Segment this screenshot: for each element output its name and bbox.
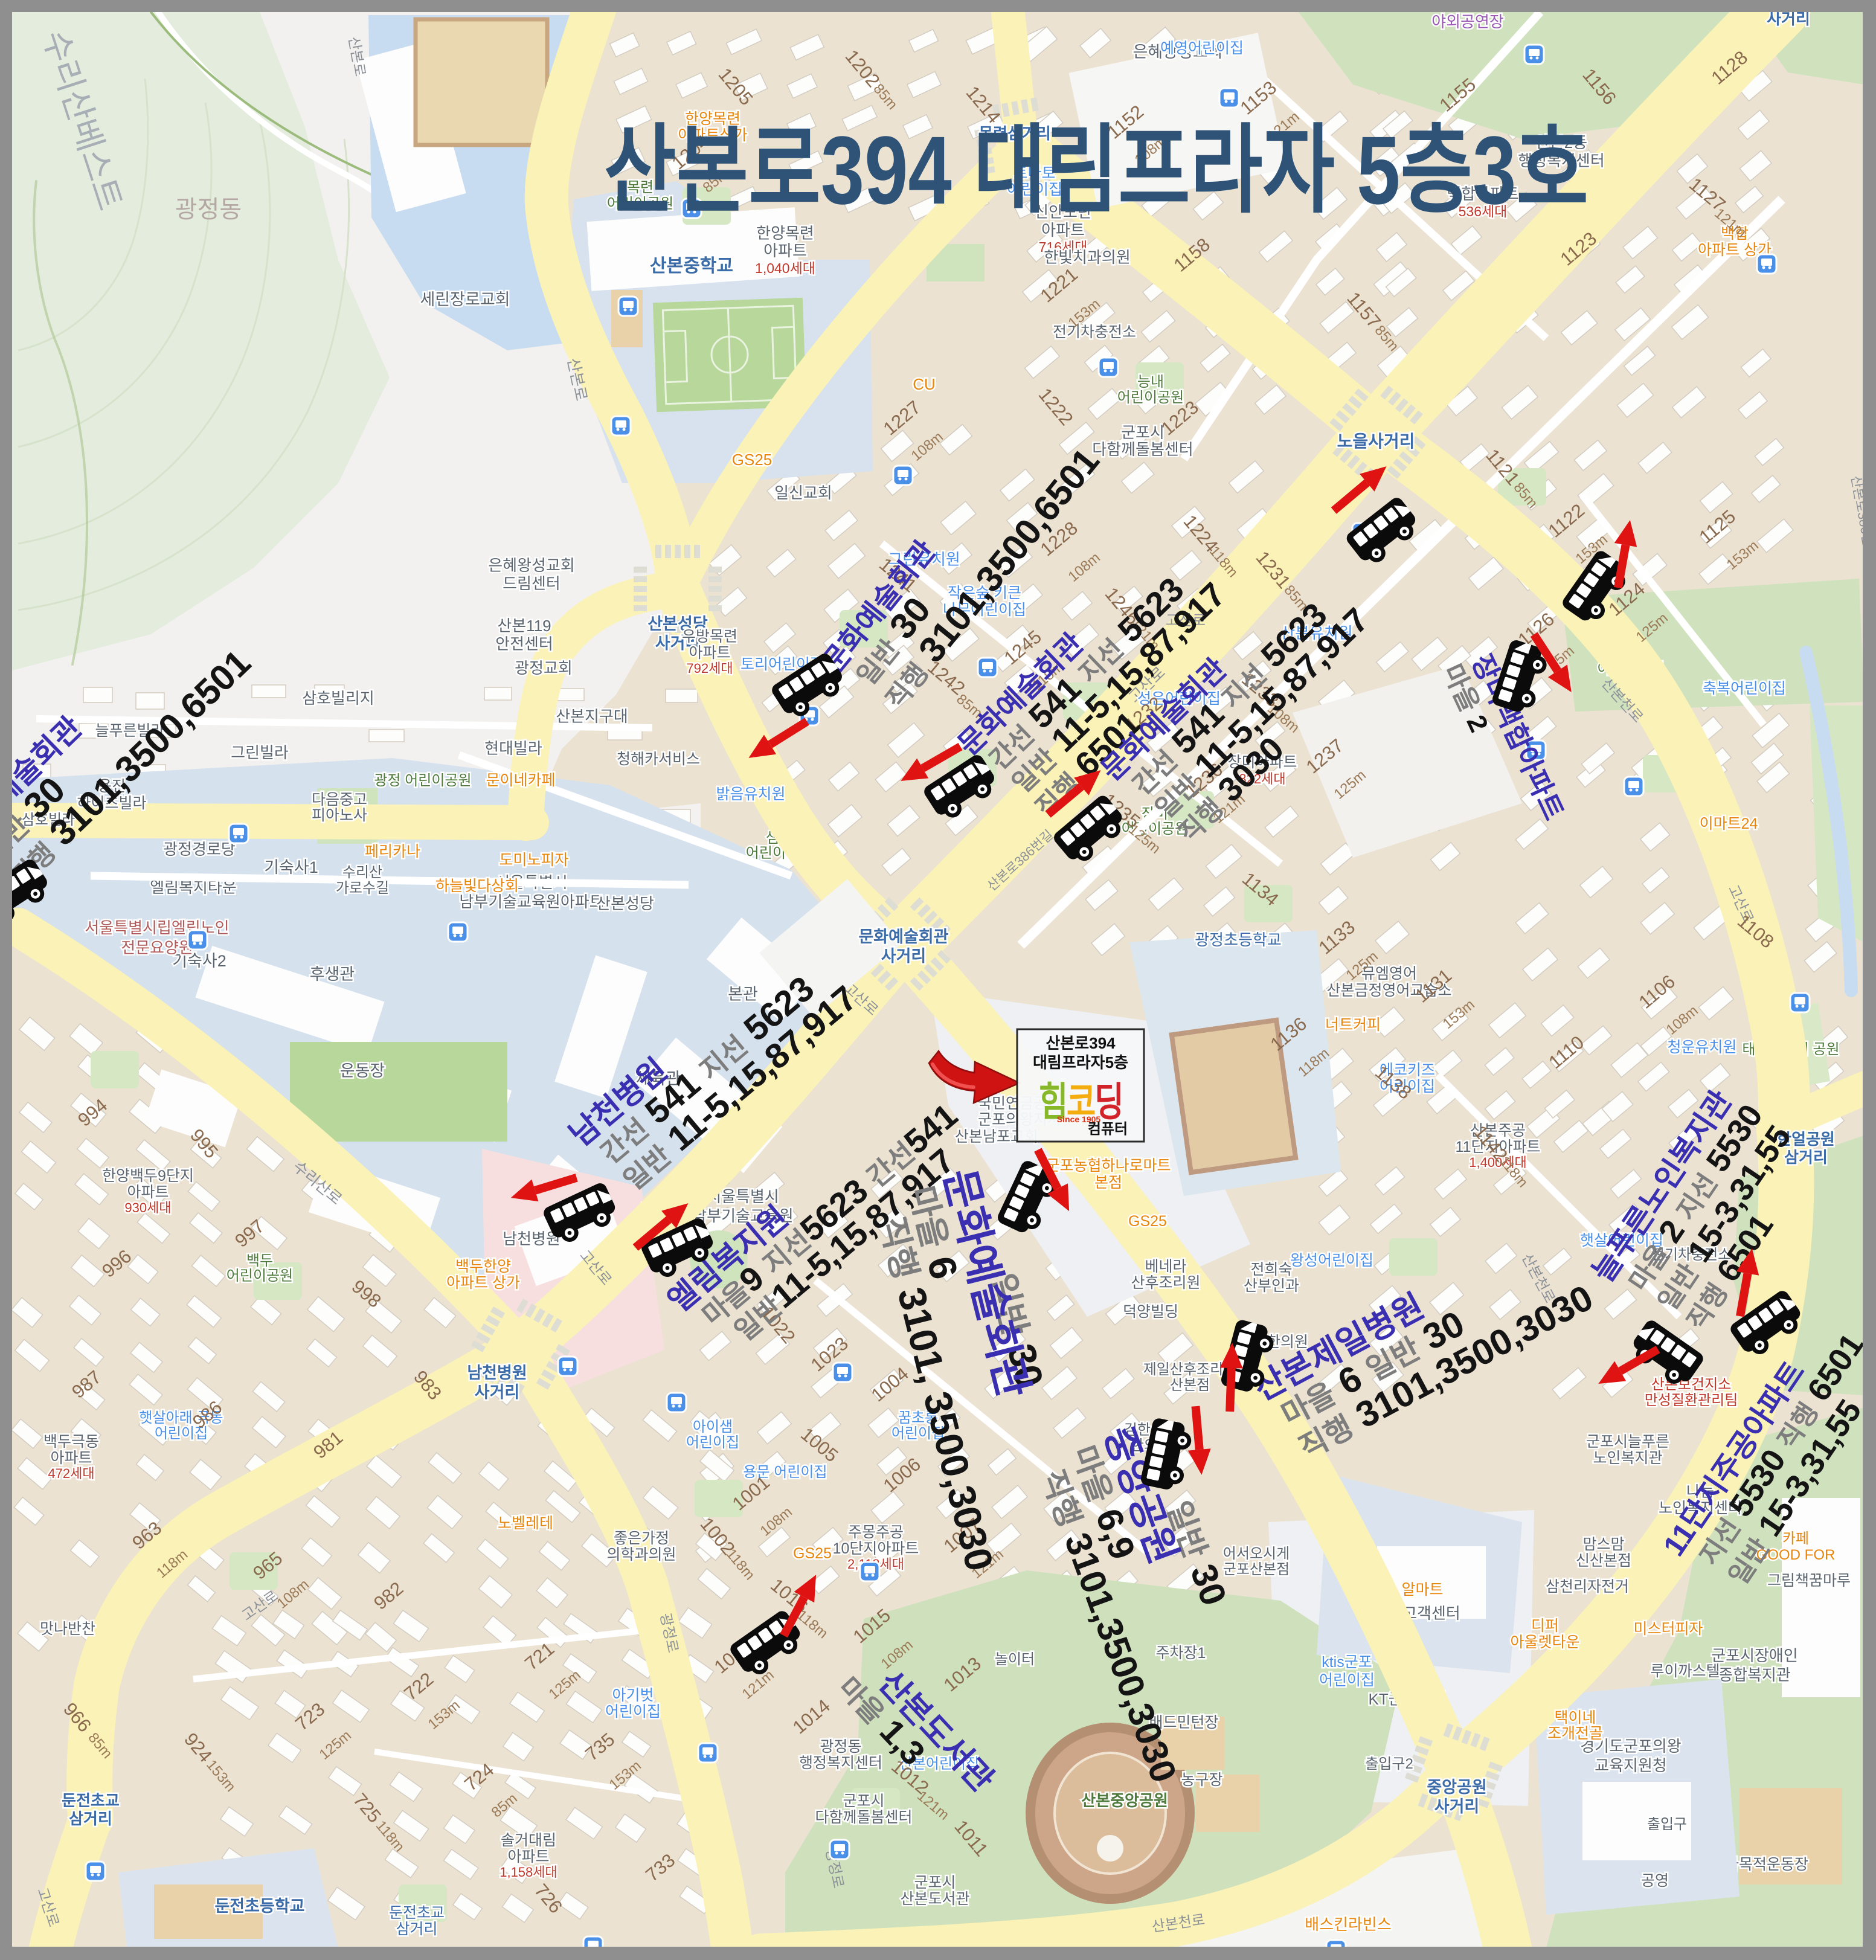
svg-text:어린이집: 어린이집 <box>686 1435 739 1451</box>
svg-text:그림책꿈마루: 그림책꿈마루 <box>1767 1572 1851 1589</box>
svg-text:광정동: 광정동 <box>175 196 242 223</box>
svg-text:은혜왕성교회: 은혜왕성교회 <box>488 556 575 574</box>
svg-text:10단지아파트: 10단지아파트 <box>833 1540 919 1557</box>
svg-text:792세대: 792세대 <box>686 661 733 676</box>
svg-text:놀이터: 놀이터 <box>995 1651 1035 1668</box>
svg-text:산본119: 산본119 <box>497 617 551 635</box>
svg-text:한빛치과의원: 한빛치과의원 <box>1044 248 1131 266</box>
svg-text:도미노피자: 도미노피자 <box>499 852 568 869</box>
svg-text:컴퓨터: 컴퓨터 <box>1088 1121 1128 1137</box>
svg-text:472세대: 472세대 <box>48 1466 94 1481</box>
svg-text:중앙공원: 중앙공원 <box>1427 1778 1486 1796</box>
svg-text:페리카나: 페리카나 <box>365 843 420 860</box>
svg-text:남천병원: 남천병원 <box>467 1364 527 1382</box>
svg-text:본점: 본점 <box>1094 1174 1122 1191</box>
svg-text:문이네카페: 문이네카페 <box>486 772 555 789</box>
svg-text:아파트: 아파트 <box>127 1184 169 1201</box>
svg-text:드림센터: 드림센터 <box>503 574 561 593</box>
svg-text:어린이집: 어린이집 <box>605 1703 661 1720</box>
svg-text:삼호빌리지: 삼호빌리지 <box>302 689 374 707</box>
svg-text:야외공연장: 야외공연장 <box>1431 13 1504 31</box>
svg-text:의학과의원: 의학과의원 <box>606 1546 676 1563</box>
svg-text:솔거대림: 솔거대림 <box>501 1832 556 1849</box>
svg-text:축복어린이집: 축복어린이집 <box>1703 680 1786 697</box>
svg-text:예영어린이집: 예영어린이집 <box>1160 40 1244 57</box>
svg-text:주몽주공: 주몽주공 <box>848 1524 904 1541</box>
svg-text:930세대: 930세대 <box>124 1200 171 1215</box>
svg-text:사거리: 사거리 <box>1434 1798 1480 1816</box>
svg-text:운동장: 운동장 <box>340 1062 385 1080</box>
svg-text:알마트: 알마트 <box>1401 1581 1443 1598</box>
svg-text:군포시: 군포시 <box>914 1874 956 1891</box>
svg-text:산본성당: 산본성당 <box>596 895 654 913</box>
svg-text:맘스맘: 맘스맘 <box>1582 1536 1624 1553</box>
svg-text:좋은가정: 좋은가정 <box>614 1530 669 1547</box>
svg-text:1,158세대: 1,158세대 <box>500 1865 557 1880</box>
svg-text:전문요양원: 전문요양원 <box>121 939 193 957</box>
svg-text:능내: 능내 <box>1137 374 1164 390</box>
svg-text:산본로394: 산본로394 <box>1046 1034 1116 1052</box>
svg-text:다목적운동장: 다목적운동장 <box>1725 1856 1808 1873</box>
svg-text:가로수길: 가로수길 <box>336 880 389 896</box>
svg-text:맛나반찬: 맛나반찬 <box>40 1621 95 1637</box>
svg-text:산후조리원: 산후조리원 <box>1131 1274 1200 1291</box>
svg-text:군포농협하나로마트: 군포농협하나로마트 <box>1046 1157 1171 1174</box>
svg-text:일신교회: 일신교회 <box>774 484 832 502</box>
svg-text:노을사거리: 노을사거리 <box>1337 432 1415 451</box>
svg-text:산본도서관: 산본도서관 <box>900 1891 969 1907</box>
svg-text:아파트 상가: 아파트 상가 <box>446 1274 520 1291</box>
svg-text:본관: 본관 <box>728 985 758 1003</box>
svg-text:노인복지관: 노인복지관 <box>1593 1450 1662 1467</box>
svg-text:청해카서비스: 청해카서비스 <box>617 751 700 768</box>
svg-text:왕성어린이집: 왕성어린이집 <box>1290 1252 1373 1269</box>
svg-text:광정교회: 광정교회 <box>515 659 573 677</box>
svg-text:광정초등학교: 광정초등학교 <box>1195 931 1282 949</box>
svg-text:군포시: 군포시 <box>843 1793 884 1810</box>
svg-text:삼거리: 삼거리 <box>1784 1148 1828 1166</box>
svg-text:한양백두9단지: 한양백두9단지 <box>102 1168 194 1184</box>
svg-text:교육지원청: 교육지원청 <box>1595 1756 1667 1775</box>
svg-text:아파트: 아파트 <box>763 242 807 260</box>
svg-text:현대빌라: 현대빌라 <box>484 739 542 757</box>
svg-text:루이까스텔: 루이까스텔 <box>1650 1663 1720 1680</box>
svg-text:후생관: 후생관 <box>310 965 355 983</box>
svg-text:어린이공원: 어린이공원 <box>226 1268 293 1284</box>
svg-text:광정 어린이공원: 광정 어린이공원 <box>374 773 471 789</box>
svg-text:산본보건지소: 산본보건지소 <box>1651 1377 1731 1393</box>
svg-text:그린빌라: 그린빌라 <box>231 744 289 762</box>
svg-text:군포시장애인: 군포시장애인 <box>1711 1647 1798 1665</box>
svg-text:GS25: GS25 <box>793 1545 832 1562</box>
svg-text:만성질환관리팀: 만성질환관리팀 <box>1645 1392 1738 1409</box>
svg-text:배스킨라빈스: 배스킨라빈스 <box>1305 1915 1392 1933</box>
svg-text:피아노사: 피아노사 <box>312 807 367 824</box>
svg-text:군포산본점: 군포산본점 <box>1223 1561 1290 1578</box>
svg-text:둔전초교: 둔전초교 <box>389 1904 445 1921</box>
svg-text:삼거리: 삼거리 <box>396 1921 437 1938</box>
svg-text:밝음유치원: 밝음유치원 <box>716 786 785 803</box>
svg-text:CU: CU <box>913 375 936 393</box>
svg-text:안전센터: 안전센터 <box>495 635 553 653</box>
svg-text:수리산: 수리산 <box>342 864 382 881</box>
svg-text:대림프라자5층: 대림프라자5층 <box>1033 1053 1128 1072</box>
svg-text:신산본점: 신산본점 <box>1576 1552 1631 1569</box>
svg-text:산본로394 대림프라자 5층3호: 산본로394 대림프라자 5층3호 <box>604 116 1588 224</box>
svg-text:아파트: 아파트 <box>50 1450 92 1467</box>
svg-text:택이네: 택이네 <box>1554 1709 1596 1726</box>
svg-text:백두: 백두 <box>246 1253 273 1269</box>
svg-text:산본중앙공원: 산본중앙공원 <box>1081 1791 1168 1810</box>
svg-text:미스터피자: 미스터피자 <box>1633 1621 1703 1637</box>
svg-text:덕양빌딩: 덕양빌딩 <box>1123 1303 1178 1320</box>
svg-text:주차장1: 주차장1 <box>1156 1645 1206 1662</box>
svg-text:사거리: 사거리 <box>881 947 927 965</box>
svg-text:노벨레테: 노벨레테 <box>498 1515 553 1532</box>
svg-text:광정경로당: 광정경로당 <box>163 840 236 858</box>
svg-text:1,040세대: 1,040세대 <box>755 260 815 276</box>
svg-text:출입구2: 출입구2 <box>1365 1756 1413 1772</box>
svg-text:삼거리: 삼거리 <box>69 1810 112 1828</box>
svg-text:아울렛타운: 아울렛타운 <box>1510 1634 1579 1651</box>
svg-text:다함께돌봄센터: 다함께돌봄센터 <box>1092 440 1193 458</box>
svg-text:이마트24: 이마트24 <box>1700 815 1758 832</box>
svg-text:군포시늘푸른: 군포시늘푸른 <box>1586 1433 1669 1450</box>
svg-text:광정동: 광정동 <box>820 1738 861 1755</box>
svg-text:공영: 공영 <box>1641 1872 1669 1889</box>
svg-text:산본중학교: 산본중학교 <box>650 256 733 276</box>
svg-text:GS25: GS25 <box>732 451 773 469</box>
svg-text:우방목련: 우방목련 <box>682 628 737 645</box>
svg-text:ktis군포: ktis군포 <box>1322 1654 1372 1671</box>
svg-text:하늘빛다상회: 하늘빛다상회 <box>435 878 519 895</box>
svg-text:농구장: 농구장 <box>1181 1772 1222 1788</box>
svg-text:삼천리자전거: 삼천리자전거 <box>1546 1578 1629 1595</box>
svg-text:산본지구대: 산본지구대 <box>556 707 628 725</box>
svg-text:어린이집: 어린이집 <box>1319 1672 1375 1689</box>
svg-text:산부인과: 산부인과 <box>1244 1277 1299 1294</box>
svg-text:다함께돌봄센터: 다함께돌봄센터 <box>815 1809 912 1826</box>
svg-text:아이샘: 아이샘 <box>693 1419 733 1435</box>
svg-text:사거리: 사거리 <box>475 1383 520 1401</box>
svg-text:산본점: 산본점 <box>1170 1377 1210 1393</box>
svg-text:남부기술교육원아파트: 남부기술교육원아파트 <box>459 893 603 911</box>
svg-text:아파트: 아파트 <box>507 1848 549 1865</box>
svg-text:사거리: 사거리 <box>1767 10 1810 28</box>
svg-text:다음중고: 다음중고 <box>312 791 367 808</box>
svg-text:전희숙: 전희숙 <box>1250 1261 1292 1278</box>
svg-text:전기차충전소: 전기차충전소 <box>1053 324 1136 341</box>
svg-text:디퍼: 디퍼 <box>1531 1618 1559 1634</box>
svg-text:문화예술회관: 문화예술회관 <box>858 928 948 946</box>
svg-text:한양목련: 한양목련 <box>756 224 814 242</box>
svg-text:백두한양: 백두한양 <box>455 1258 511 1275</box>
svg-text:세린장로교회: 세린장로교회 <box>420 291 510 309</box>
svg-text:둔전초교: 둔전초교 <box>62 1791 120 1810</box>
svg-text:기숙사1: 기숙사1 <box>264 858 318 876</box>
svg-text:너트커피: 너트커피 <box>1325 1017 1381 1033</box>
svg-text:출입구: 출입구 <box>1647 1816 1687 1833</box>
svg-text:어린이공원: 어린이공원 <box>1117 390 1184 406</box>
svg-text:아기벗: 아기벗 <box>612 1687 654 1704</box>
svg-text:GS25: GS25 <box>1128 1213 1167 1230</box>
svg-text:청운유치원: 청운유치원 <box>1667 1039 1736 1056</box>
svg-text:베네라: 베네라 <box>1145 1258 1186 1275</box>
svg-text:아파트: 아파트 <box>689 644 730 661</box>
svg-text:둔전초등학교: 둔전초등학교 <box>214 1897 304 1915</box>
svg-text:남천병원: 남천병원 <box>503 1230 561 1248</box>
svg-text:행정복지센터: 행정복지센터 <box>799 1755 882 1772</box>
svg-text:백두극동: 백두극동 <box>43 1433 99 1450</box>
svg-text:군포시: 군포시 <box>1121 423 1164 442</box>
svg-text:어서오시게: 어서오시게 <box>1223 1546 1290 1562</box>
svg-text:종합복지관: 종합복지관 <box>1718 1666 1791 1684</box>
svg-text:조개전골: 조개전골 <box>1547 1725 1603 1742</box>
